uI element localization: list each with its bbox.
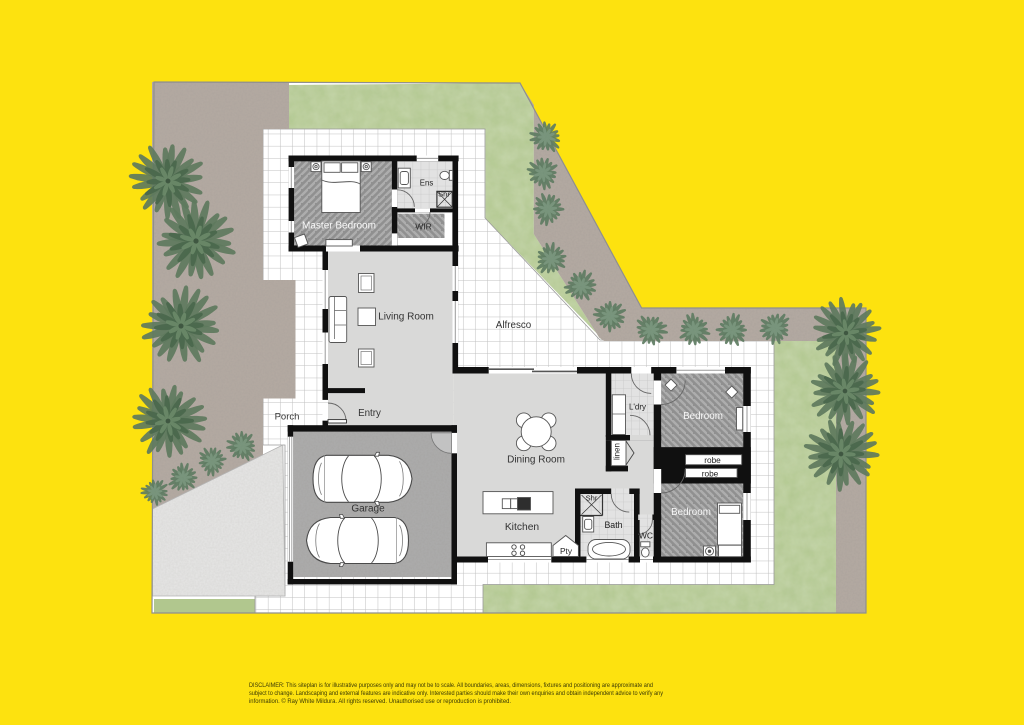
svg-text:Dining Room: Dining Room (507, 455, 565, 466)
svg-text:linen: linen (613, 443, 622, 460)
svg-text:Shr: Shr (586, 494, 598, 503)
svg-text:WIR: WIR (415, 222, 432, 232)
svg-text:Porch: Porch (275, 412, 300, 423)
svg-text:Shr: Shr (438, 190, 450, 199)
svg-text:L'dry: L'dry (629, 403, 646, 412)
svg-text:Bedroom: Bedroom (683, 411, 723, 422)
svg-text:Pty: Pty (560, 546, 573, 556)
svg-text:information. © Ray White Mildu: information. © Ray White Mildura. All ri… (249, 698, 511, 705)
svg-text:Master Bedroom: Master Bedroom (302, 221, 376, 232)
svg-text:subject to change. Landscaping: subject to change. Landscaping and exter… (249, 690, 664, 697)
svg-text:Kitchen: Kitchen (505, 522, 540, 533)
svg-text:Alfresco: Alfresco (496, 320, 532, 331)
svg-text:Living Room: Living Room (378, 312, 434, 323)
svg-text:robe: robe (702, 468, 719, 478)
svg-text:Entry: Entry (358, 408, 381, 419)
svg-text:Bath: Bath (604, 520, 622, 530)
svg-text:WC: WC (639, 531, 653, 541)
svg-text:robe: robe (704, 455, 721, 465)
svg-text:Garage: Garage (351, 504, 385, 515)
svg-text:Ens: Ens (420, 179, 434, 188)
svg-text:Bedroom: Bedroom (671, 507, 711, 518)
svg-text:DISCLAIMER: This siteplan is f: DISCLAIMER: This siteplan is for illustr… (249, 682, 653, 689)
